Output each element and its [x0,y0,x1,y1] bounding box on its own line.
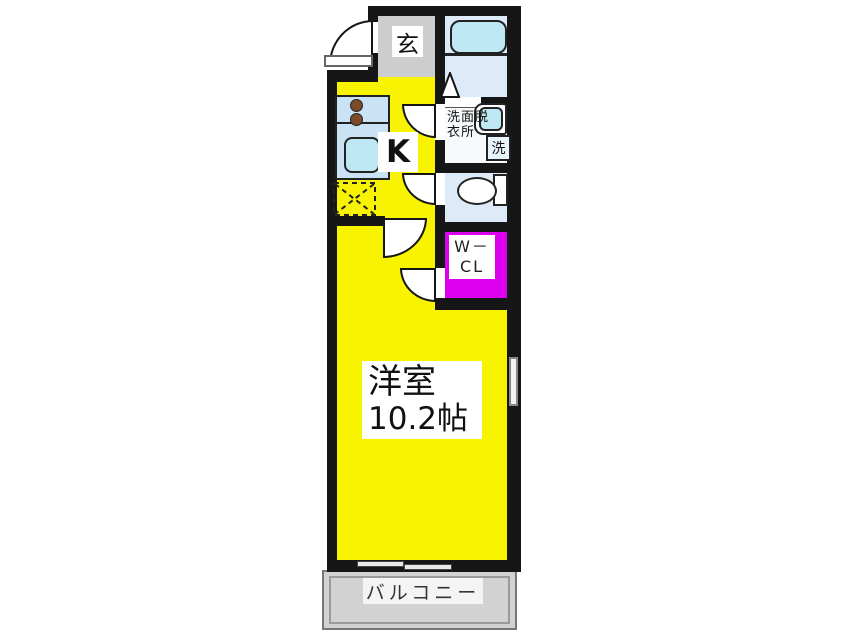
floorplan: 洗 玄 K 洗面脱衣所 W－ CL 洋室 10.2帖 バルコニー [0,0,846,634]
entrance-label: 玄 [396,25,419,59]
wall-right [507,6,521,572]
closet-label-box: W－ CL [449,235,495,279]
toilet-bowl-icon [457,177,497,205]
balcony-label: バルコニー [366,578,481,605]
refrigerator-space-icon [333,182,376,216]
wall-closet-bottom [435,298,507,310]
kitchen-sink-icon [344,137,380,173]
sliding-door-panel [404,564,452,570]
stove-burner-icon [350,113,363,126]
toilet-door-opening [435,173,445,205]
washing-machine-label: 洗 [492,138,506,158]
wall-washroom-toilet [435,163,507,173]
entrance-label-box: 玄 [392,26,423,57]
sliding-door-panel [357,561,404,567]
closet-label-line1: W－ [454,237,490,257]
wall-top [368,6,521,16]
western-room-label-box: 洋室 10.2帖 [362,361,482,439]
wall-toilet-closet [435,222,507,232]
counter-divider-line [335,122,390,124]
window [509,357,518,406]
bathroom-divider-line [445,53,507,56]
wall-kitchen-bottom [327,216,385,226]
washroom-door-opening [435,104,445,140]
kitchen-label: K [386,134,410,170]
entrance-door-leaf [324,55,373,67]
bathtub-icon [450,20,507,54]
washroom-label: 洗面脱衣所 [447,110,492,140]
closet-label-line2: CL [460,257,484,277]
closet-door-opening [435,268,445,298]
western-room-size: 10.2帖 [368,401,468,437]
balcony-label-box: バルコニー [363,578,483,604]
western-room-name: 洋室 [368,363,436,401]
folding-door-icon [439,72,463,98]
stove-burner-icon [350,99,363,112]
kitchen-label-box: K [378,132,418,172]
